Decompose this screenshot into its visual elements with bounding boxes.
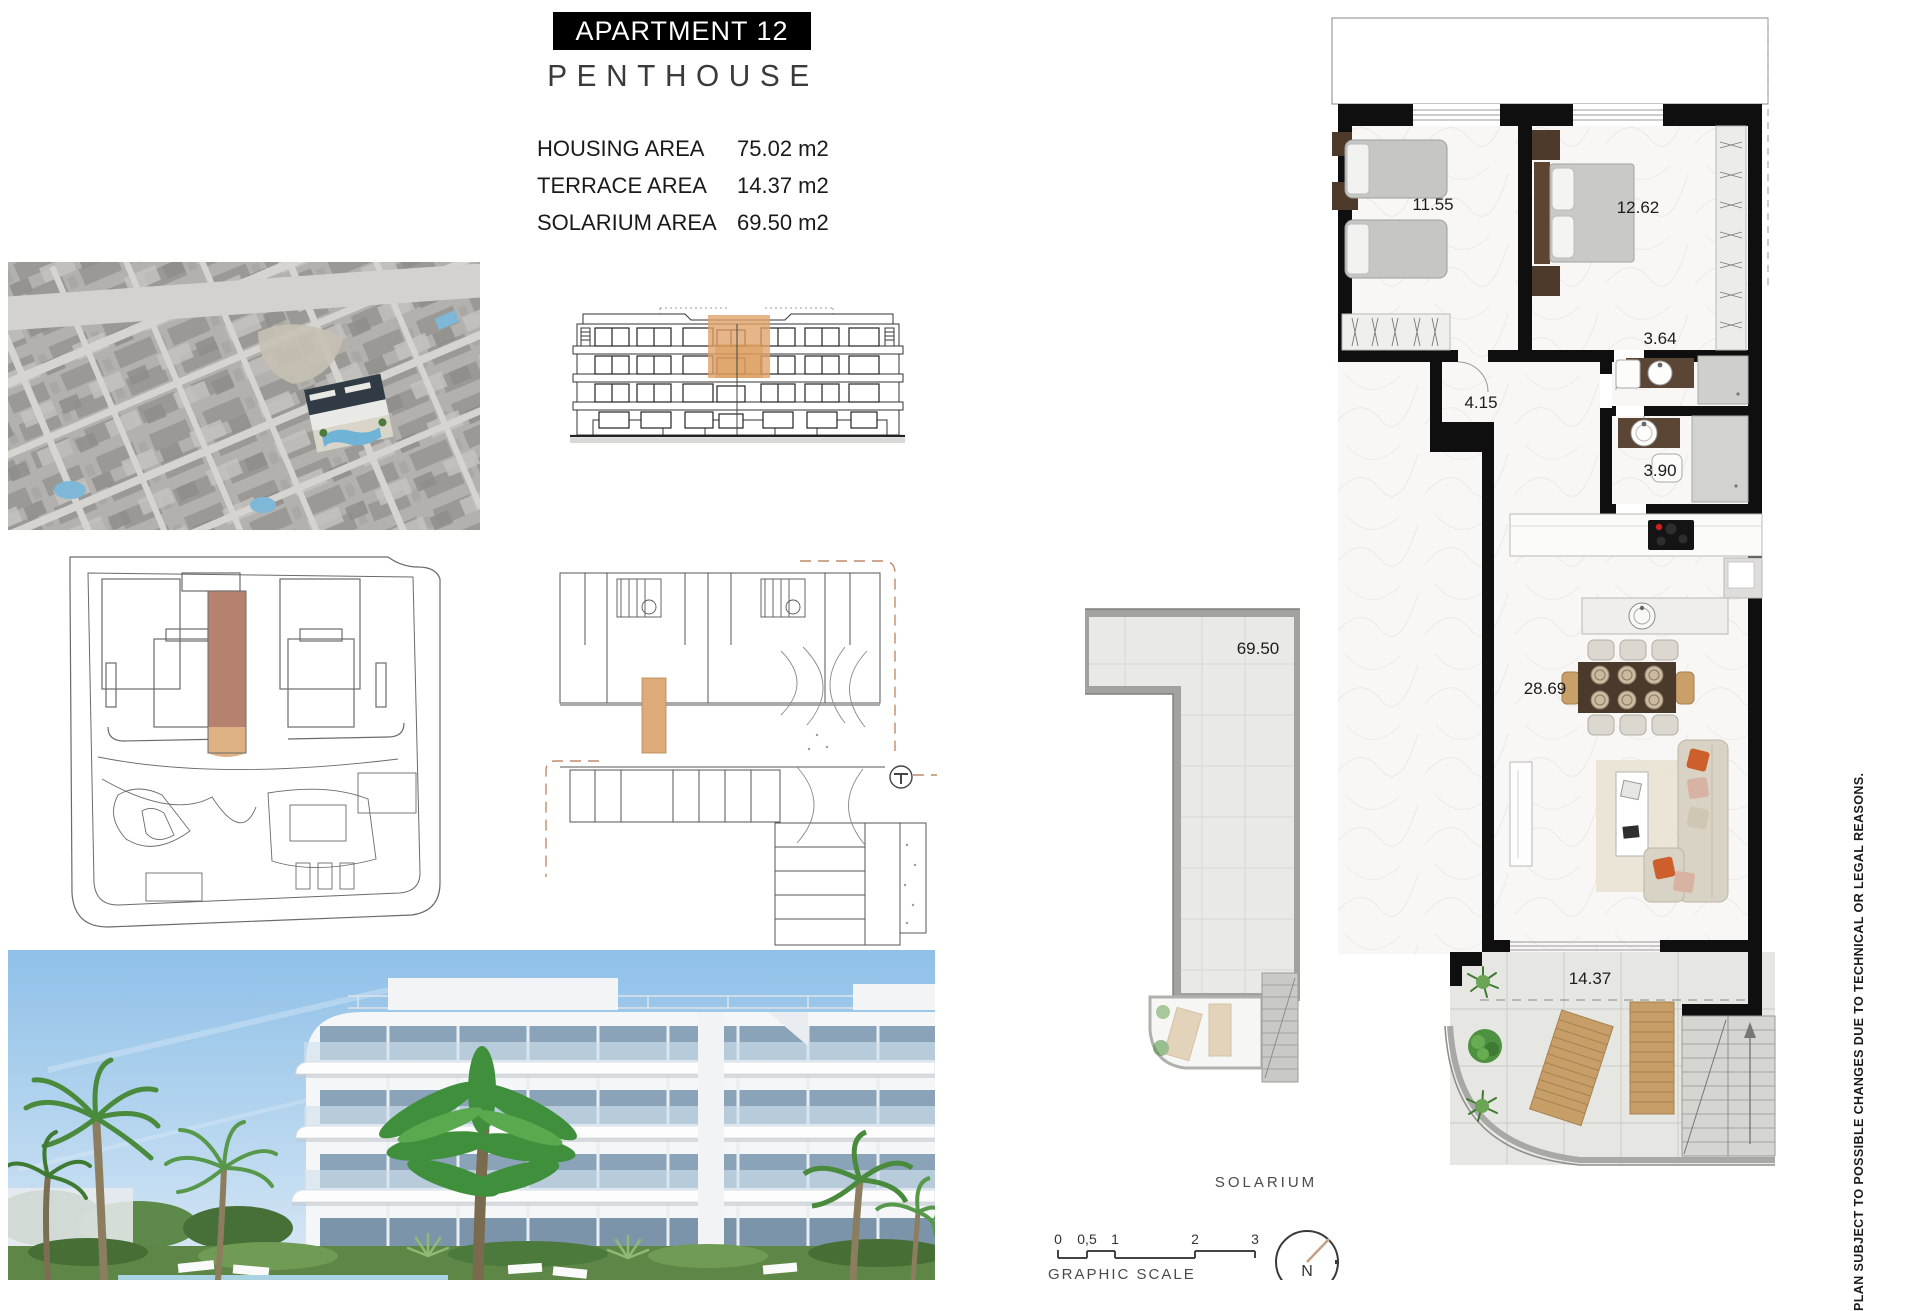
solarium-stairs xyxy=(1262,973,1298,1082)
map-pool-2 xyxy=(250,497,276,513)
room-label-terrace: 14.37 xyxy=(1569,969,1612,988)
terrace-area-label: TERRACE AREA xyxy=(537,173,737,199)
elevation-roof-dotted xyxy=(660,308,833,314)
north-arrow: N xyxy=(1268,1226,1346,1280)
area-row-housing: HOUSING AREA 75.02 m2 xyxy=(537,130,867,167)
north-label: N xyxy=(1301,1263,1313,1280)
area-row-solarium: SOLARIUM AREA 69.50 m2 xyxy=(537,204,867,241)
keyplan-stairs xyxy=(617,579,805,617)
housing-area-label: HOUSING AREA xyxy=(537,136,737,162)
scale-tick-1: 1 xyxy=(1111,1231,1119,1247)
room-label-bathroom1: 3.64 xyxy=(1643,329,1676,348)
elevation-highlight-2 xyxy=(715,344,763,378)
solarium-area-label: SOLARIUM AREA xyxy=(537,210,737,236)
room-label-twin-bedroom: 11.55 xyxy=(1412,195,1453,214)
disclaimer-text: PLAN SUBJECT TO POSSIBLE CHANGES DUE TO … xyxy=(1848,810,1870,1274)
aerial-map xyxy=(8,262,480,530)
keyplan-dashed-boundary xyxy=(546,561,937,950)
keyplan-highlight-unit xyxy=(642,678,666,753)
map-pool-1 xyxy=(54,481,86,499)
plan-pergola-outline xyxy=(1332,18,1768,104)
room-label-master-bedroom: 12.62 xyxy=(1617,198,1660,217)
graphic-scale: 0 0,5 1 2 3 xyxy=(1048,1230,1263,1266)
floor-plan: 11.55 12.62 3.64 4.15 3.90 28.69 14.37 xyxy=(1330,14,1778,1166)
keyplan-driveway-arcs xyxy=(781,647,867,845)
room-label-living: 28.69 xyxy=(1524,679,1567,698)
keyplan-structure xyxy=(560,573,926,945)
room-label-bathroom2: 3.90 xyxy=(1643,461,1676,480)
north-needle xyxy=(1307,1239,1329,1262)
solarium-plan: 69.50 xyxy=(1085,590,1300,1102)
scale-tick-0: 0 xyxy=(1054,1231,1062,1247)
keyplan-entry-symbol xyxy=(890,766,912,788)
scale-tick-3: 3 xyxy=(1251,1231,1259,1247)
housing-area-value: 75.02 m2 xyxy=(737,136,857,162)
apartment-type: PENTHOUSE xyxy=(496,58,870,94)
solarium-lower-terrace xyxy=(1150,997,1262,1068)
room-label-hallway: 4.15 xyxy=(1464,393,1497,412)
scale-tick-05: 0,5 xyxy=(1077,1231,1097,1247)
site-plan-highlight-unit xyxy=(208,591,246,727)
photo-building xyxy=(292,978,935,1260)
plan-lounger-2 xyxy=(1630,1002,1674,1114)
scale-tick-2: 2 xyxy=(1191,1231,1199,1247)
apartment-title: APARTMENT 12 xyxy=(553,12,811,50)
plan-stairs xyxy=(1682,1016,1775,1156)
graphic-scale-caption: GRAPHIC SCALE xyxy=(1048,1266,1196,1283)
area-row-terrace: TERRACE AREA 14.37 m2 xyxy=(537,167,867,204)
terrace-area-value: 14.37 m2 xyxy=(737,173,857,199)
plan-twin-bedroom-furniture xyxy=(1332,132,1450,350)
key-plan xyxy=(545,555,940,950)
elevation-drawing xyxy=(565,300,910,445)
solarium-area-value: 69.50 m2 xyxy=(737,210,857,236)
area-table: HOUSING AREA 75.02 m2 TERRACE AREA 14.37… xyxy=(537,130,867,241)
site-plan-lines xyxy=(70,557,440,927)
scale-ticks: 0 0,5 1 2 3 xyxy=(1054,1231,1259,1247)
site-plan xyxy=(58,543,443,943)
solarium-area-value-plan: 69.50 xyxy=(1237,639,1280,658)
building-photo xyxy=(8,950,935,1280)
solarium-caption: SOLARIUM xyxy=(1186,1174,1346,1191)
scale-bar xyxy=(1058,1250,1255,1258)
elevation-ground-fill xyxy=(570,438,905,443)
solarium-tile-area xyxy=(1085,613,1298,997)
